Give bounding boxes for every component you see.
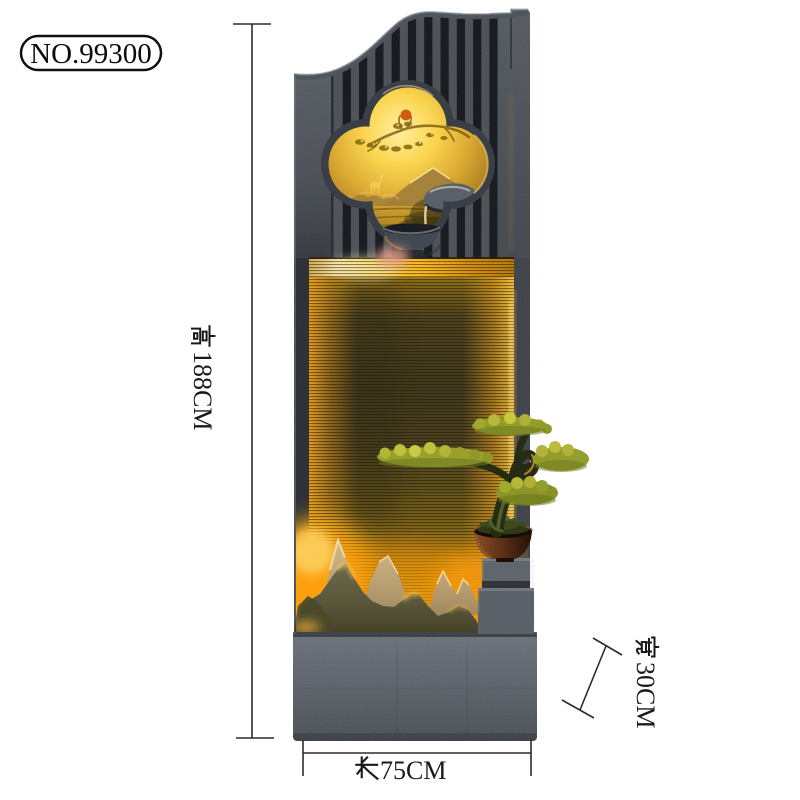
svg-text:30CM: 30CM bbox=[631, 662, 660, 728]
svg-text:75CM: 75CM bbox=[380, 756, 446, 785]
svg-text:188CM: 188CM bbox=[188, 351, 217, 430]
svg-text:NO.99300: NO.99300 bbox=[30, 38, 152, 70]
